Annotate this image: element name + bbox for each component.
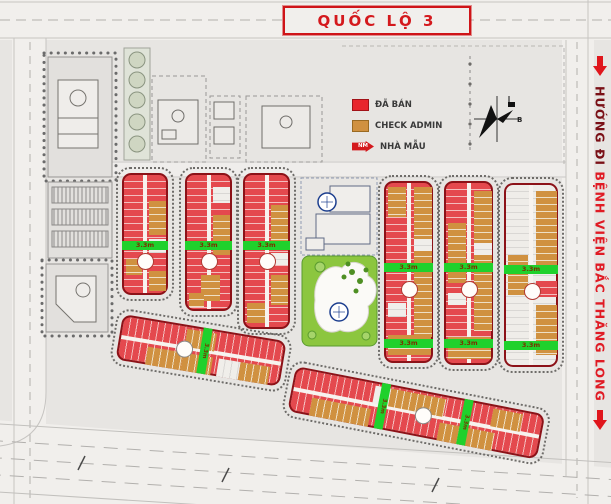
plot-patch: [414, 187, 432, 337]
master-plan-map: B QUỐC LỘ 3 ĐÃ BÁN CHECK ADMIN NM NHÀ MẪ…: [0, 0, 611, 504]
school-parcel-2: [210, 96, 240, 158]
lane-width-bar: 3.3m: [185, 241, 232, 250]
legend-item-label: ĐÃ BÁN: [375, 100, 412, 110]
housing-block-lk6: 3.3m 3.3m: [504, 183, 558, 367]
legend-item-model-house: NM NHÀ MẪU: [352, 141, 442, 152]
lane-width-bar: 3.3m: [444, 339, 493, 348]
plot-patch: [149, 201, 166, 235]
plot-patch: [536, 191, 557, 271]
legend: ĐÃ BÁN CHECK ADMIN NM NHÀ MẪU: [352, 99, 442, 152]
lane-width-bar: 3.3m: [444, 263, 493, 272]
school-parcel-1: [152, 76, 206, 162]
highway-sign-label: QUỐC LỘ 3: [318, 12, 437, 30]
direction-sign: HƯỚNG ĐI BỆNH VIỆN BẮC THĂNG LONG: [589, 56, 611, 468]
block-number-badge: [259, 253, 276, 270]
civic-parcel-2: [42, 260, 112, 336]
plot-patch: [474, 191, 492, 331]
plot-patch: [448, 223, 466, 283]
block-number-badge: [201, 253, 218, 270]
compass-north-label: B: [517, 116, 522, 124]
civic-parcel-1: [44, 53, 116, 181]
plot-patch: [189, 293, 204, 307]
legend-item-check-admin: CHECK ADMIN: [352, 120, 442, 132]
plot-patch: [388, 303, 406, 317]
lane-width-bar: 3.3m: [122, 241, 168, 250]
legend-item-sold: ĐÃ BÁN: [352, 99, 442, 111]
plot-patch: [490, 408, 523, 431]
sold-color-swatch: [352, 99, 369, 111]
lane-width-bar: 3.3m: [384, 263, 433, 272]
plot-patch: [414, 239, 432, 251]
housing-block-lk2: 3.3m: [185, 173, 232, 311]
lane-width-bar: 3.3m: [384, 339, 433, 348]
compass-icon: B: [474, 96, 522, 142]
lane-width-bar: 3.3m: [504, 265, 558, 274]
parking-parcel: [48, 182, 112, 258]
block-number-badge: [401, 281, 418, 298]
highway-sign: QUỐC LỘ 3: [283, 6, 471, 35]
down-arrow-icon: [593, 410, 607, 430]
plot-patch: [474, 243, 492, 255]
park: [302, 256, 377, 346]
lane-width-bar: 3.3m: [504, 341, 558, 350]
block-number-badge: [524, 283, 541, 300]
housing-block-lk3: 3.3m: [243, 173, 290, 329]
plot-patch: [271, 275, 288, 305]
model-house-icon: NM: [352, 141, 374, 152]
direction-sign-text: HƯỚNG ĐI BỆNH VIỆN BẮC THĂNG LONG: [593, 86, 608, 402]
block-number-badge: [137, 253, 154, 270]
legend-item-label: NHÀ MẪU: [380, 142, 426, 152]
housing-block-lk1: 3.3m: [122, 173, 168, 295]
plot-patch: [213, 187, 230, 203]
school-parcel-3: [246, 96, 322, 162]
block-number-badge: [461, 281, 478, 298]
center-facility-parcel: [301, 178, 377, 255]
tree-strip: [124, 48, 150, 160]
housing-block-lk5: 3.3m 3.3m: [444, 181, 493, 365]
plot-patch: [388, 187, 406, 217]
plot-patch: [149, 271, 166, 291]
lane-width-bar: 3.3m: [243, 241, 290, 250]
legend-item-label: CHECK ADMIN: [375, 121, 442, 131]
check-admin-color-swatch: [352, 120, 369, 132]
down-arrow-icon: [593, 56, 607, 76]
plot-patch: [216, 358, 241, 379]
plot-patch: [247, 303, 265, 323]
housing-block-lk4: 3.3m 3.3m: [384, 181, 433, 363]
